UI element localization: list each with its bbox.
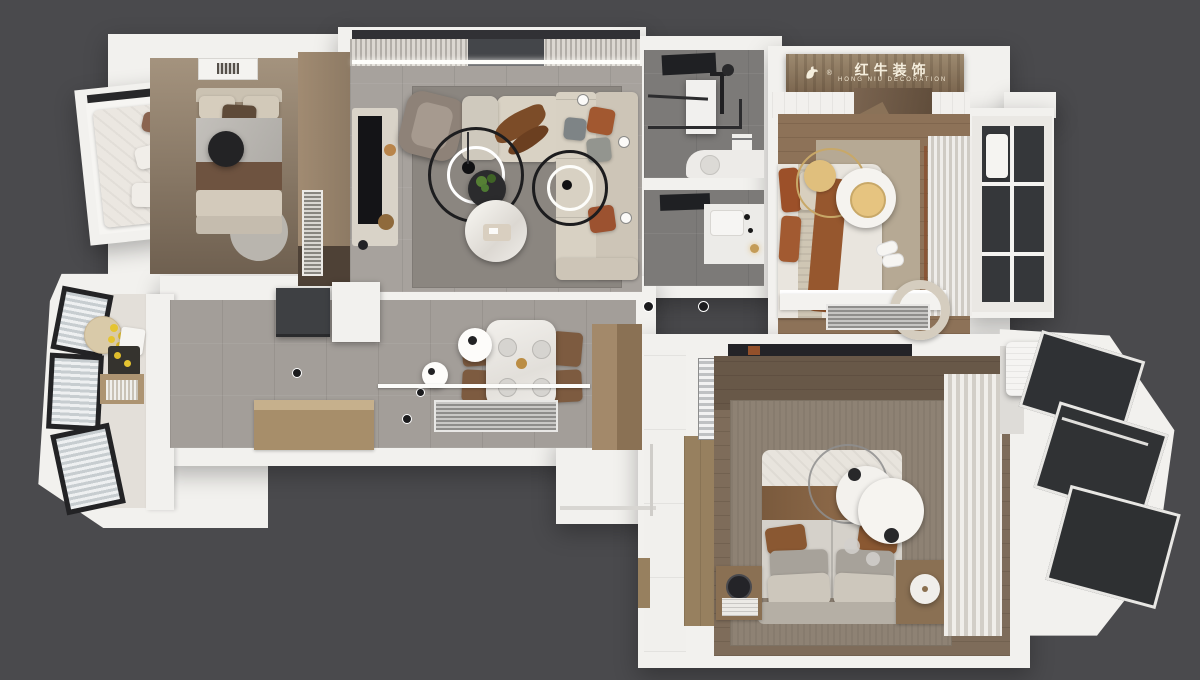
- bronze-bowl: [378, 214, 394, 230]
- plant-leaves3: [481, 184, 489, 192]
- lemon-3: [108, 336, 115, 343]
- dining-pendant-big-hub: [468, 336, 477, 345]
- wc-gold-light: [750, 244, 759, 253]
- balcony-tr-white-box: [986, 134, 1008, 178]
- lemon-1: [110, 324, 118, 332]
- wc-mirror: [660, 193, 711, 211]
- glass-partition-v: [739, 99, 742, 129]
- kitchen-window-2: [46, 353, 104, 432]
- plant-leaves2: [487, 174, 496, 183]
- runner-rug: [302, 190, 323, 276]
- cooktop: [108, 346, 140, 376]
- ring-pendant-1-wire: [467, 132, 469, 164]
- sofa-arm: [556, 258, 638, 280]
- kitchen-wood-cabinet: [100, 374, 144, 404]
- shower-head: [722, 64, 734, 76]
- m-headboard: [758, 602, 906, 624]
- glass-bulb-1: [844, 538, 860, 554]
- dining-ledge: [378, 384, 590, 388]
- entry-white-cabinet: [332, 282, 380, 342]
- ceiling-spot-2: [698, 301, 709, 312]
- shoe-bench: [254, 400, 374, 450]
- dining-pendant-small-hub: [428, 368, 435, 375]
- cabinet-striped-front: [106, 380, 138, 400]
- bed-throw-brown: [196, 162, 282, 190]
- sofa-pillow-blue: [563, 117, 587, 141]
- balcony-tr-mullion-h1: [982, 182, 1044, 186]
- balcony-tr-mullion-h2: [982, 252, 1044, 256]
- ring-pendant-2-hub: [562, 180, 572, 190]
- living-window-trim: [352, 30, 640, 39]
- hall-spot-1: [292, 368, 302, 378]
- striped-bench: [434, 400, 558, 432]
- drum-lamp-hub: [922, 586, 928, 592]
- vent-grid: [217, 63, 239, 74]
- sofa-ball-decor1: [577, 94, 589, 106]
- window2-glass: [51, 358, 98, 426]
- sign-subtitle-en: HONG NIU DECORATION: [838, 77, 947, 84]
- coffee-table-book: [489, 228, 498, 234]
- glass-partition-h: [648, 126, 740, 129]
- sofa-ball-decor3: [620, 212, 632, 224]
- wc-sink: [710, 210, 744, 236]
- bed-foot-bench: [196, 190, 282, 218]
- plate-1: [498, 338, 517, 357]
- master-door: [638, 558, 650, 608]
- striped-mat: [826, 304, 930, 330]
- master-rust-decor: [748, 346, 760, 355]
- shower-pole: [720, 74, 724, 114]
- entry-step-line: [560, 506, 656, 510]
- gold-speaker: [384, 144, 396, 156]
- entry-tv-panel: [276, 288, 330, 337]
- marble-dining-table: [486, 320, 556, 408]
- wash-basin1: [700, 155, 720, 175]
- nightstand-left-lamp: [726, 574, 752, 600]
- hall-spot-2: [402, 414, 412, 424]
- entry-door-line: [650, 444, 653, 516]
- black-stool: [208, 131, 244, 167]
- bull-logo-icon: [803, 64, 821, 82]
- round-coffee-table: [465, 200, 527, 262]
- window3-glass: [56, 429, 120, 510]
- ceiling-spot-1: [643, 301, 654, 312]
- wc-faucet2: [748, 228, 753, 233]
- plate-2: [532, 340, 551, 359]
- master-curtains: [944, 374, 1002, 636]
- dining-pendant-big: [458, 328, 492, 362]
- wc-faucet: [744, 214, 750, 220]
- curtain-light-strip: [352, 60, 640, 64]
- sign-title-cn: 红牛装饰: [855, 63, 931, 77]
- balcony-tr-mullion-v: [1010, 126, 1014, 302]
- tv-screen: [358, 116, 382, 224]
- disc-lamp-2-dot: [884, 528, 899, 543]
- white-disc-gold-center: [850, 182, 886, 218]
- cooktop-item1: [114, 352, 121, 359]
- ceiling-vent: [198, 58, 258, 80]
- wood-column-cabinet: [592, 324, 642, 450]
- living-window-gap: [468, 39, 544, 69]
- brand-sign: ® 红牛装饰 HONG NIU DECORATION: [786, 54, 964, 92]
- disc-lamp-1-dot: [848, 468, 861, 481]
- bed-foot-bench2: [196, 216, 282, 234]
- bath-vanity1: [686, 150, 764, 178]
- hall-spot-4: [416, 388, 425, 397]
- registered-mark: ®: [827, 70, 832, 77]
- bedroom2-bed: [196, 88, 282, 240]
- tr-pillow-rust2: [778, 215, 801, 262]
- gold-disc-pendant: [804, 160, 836, 192]
- gold-table-knob: [516, 358, 527, 369]
- sofa-ball-decor2: [618, 136, 630, 148]
- sofa-pillow-rust1: [586, 106, 616, 136]
- floor-lamp-dot: [358, 240, 368, 250]
- cooktop-item2: [124, 360, 131, 367]
- nightstand-left-book: [722, 598, 758, 616]
- floor-plan-render: ® 红牛装饰 HONG NIU DECORATION: [0, 0, 1200, 680]
- wood-column-dark-half: [617, 324, 642, 450]
- wc-vanity: [704, 204, 764, 264]
- shower-mirror: [662, 53, 717, 76]
- glass-bulb-2: [866, 552, 880, 566]
